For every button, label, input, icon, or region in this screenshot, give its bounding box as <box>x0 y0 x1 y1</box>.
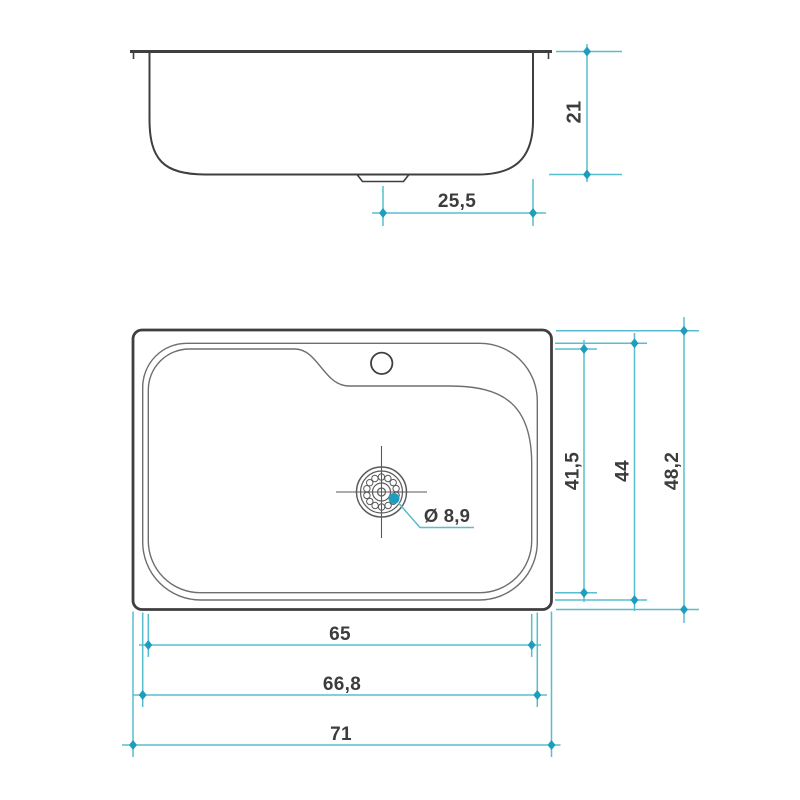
basin-inner-outline <box>148 349 531 593</box>
strainer-hole <box>364 486 370 492</box>
dim-marker <box>680 326 688 336</box>
dim-marker <box>533 690 541 700</box>
dim-marker <box>528 640 536 650</box>
sink-bowl-profile <box>150 53 534 175</box>
overall-length-label: 71 <box>330 724 352 745</box>
dim-marker <box>583 170 591 180</box>
drain-boss-profile <box>357 175 409 182</box>
drain-diameter-label: Ø 8,9 <box>424 505 470 526</box>
dim-marker <box>529 208 537 218</box>
basin-inner-length-label: 65 <box>329 624 351 645</box>
sink-outer-edge <box>133 330 552 610</box>
dim-marker <box>379 208 387 218</box>
dim-bowl-height: 21 <box>549 44 622 182</box>
dim-marker <box>129 740 137 750</box>
basin-outer-width-label: 44 <box>613 460 634 482</box>
strainer-hole <box>393 485 399 491</box>
dim-basin-inner-length: 65 <box>139 614 541 657</box>
overall-depth-label: 48,2 <box>662 452 683 490</box>
dim-marker <box>583 47 591 57</box>
plan-view: Ø 8,9 41,5 44 <box>122 317 699 757</box>
strainer-hole <box>390 479 396 485</box>
dim-marker <box>580 344 588 354</box>
strainer-hole <box>372 475 378 481</box>
basin-inner-width-label: 41,5 <box>563 452 584 490</box>
drain-to-edge-label: 25,5 <box>438 191 476 212</box>
dim-marker <box>144 640 152 650</box>
drawing-sheet: 21 25,5 <box>0 0 800 800</box>
extension-lines <box>549 52 622 175</box>
strainer-hole <box>367 498 373 504</box>
basin-outer-length-label: 66,8 <box>323 674 361 695</box>
sink-dimension-drawing: 21 25,5 <box>0 0 800 800</box>
dim-marker <box>580 588 588 598</box>
dim-marker <box>548 740 556 750</box>
dim-marker <box>631 595 639 605</box>
strainer-hole <box>364 492 370 498</box>
drain <box>336 446 427 538</box>
drain-callout-dot <box>389 493 400 504</box>
dim-basin-inner-width: 41,5 <box>555 340 597 602</box>
bowl-height-label: 21 <box>564 101 586 124</box>
side-view: 21 25,5 <box>130 44 622 226</box>
dim-marker <box>680 605 688 615</box>
drain-crosshair <box>336 446 427 538</box>
dim-marker <box>631 338 639 348</box>
faucet-hole <box>371 353 392 374</box>
basin-outer-outline <box>143 343 538 600</box>
dim-marker <box>139 690 147 700</box>
dim-drain-to-edge: 25,5 <box>372 179 546 226</box>
strainer-hole <box>385 502 391 508</box>
